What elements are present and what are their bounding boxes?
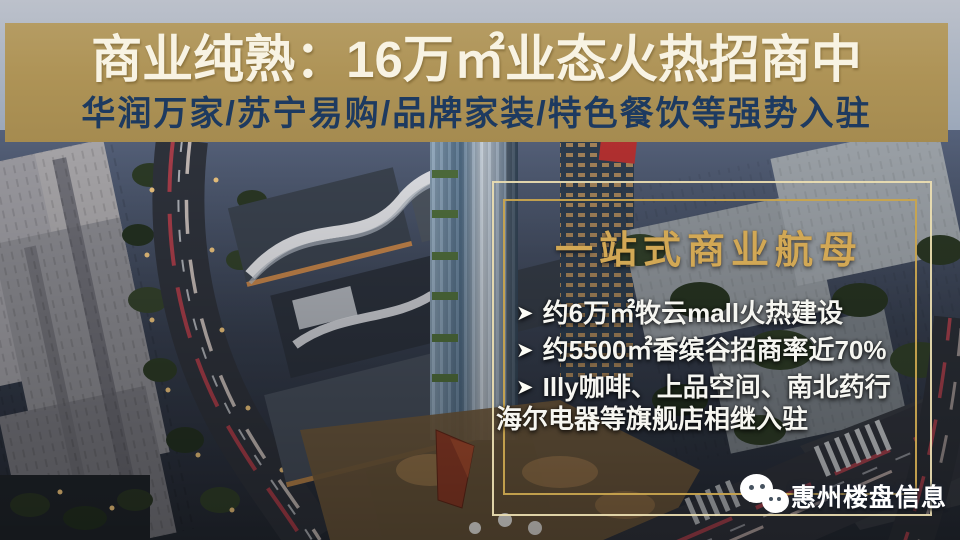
wechat-icon-eye xyxy=(749,485,754,490)
bullet-item: ➤约5500㎡香缤谷招商率近70% xyxy=(494,332,944,369)
bullet-text: 约6万㎡牧云mall火热建设 xyxy=(543,298,844,328)
wechat-icon-small-bubble xyxy=(762,489,789,513)
panel-title: 一站式商业航母 xyxy=(503,219,915,274)
wechat-icon-eye xyxy=(777,497,781,501)
headline-banner: 商业纯熟：16万㎡业态火热招商中 华润万家/苏宁易购/品牌家装/特色餐饮等强势入… xyxy=(5,23,948,142)
headline-subtitle: 华润万家/苏宁易购/品牌家装/特色餐饮等强势入驻 xyxy=(5,95,948,133)
bullet-item: 海尔电器等旗舰店相继入驻 xyxy=(494,401,944,438)
bullet-text: 约5500㎡香缤谷招商率近70% xyxy=(543,335,887,365)
bullet-text: 海尔电器等旗舰店相继入驻 xyxy=(496,404,808,434)
arrow-icon: ➤ xyxy=(516,295,534,332)
wechat-account-name: 惠州楼盘信息 xyxy=(791,478,947,514)
bullet-text: Illy咖啡、上品空间、南北药行 xyxy=(543,372,891,402)
wechat-watermark: 惠州楼盘信息 xyxy=(738,471,948,519)
wechat-icon-eye xyxy=(769,497,773,501)
arrow-icon: ➤ xyxy=(516,369,534,406)
arrow-icon: ➤ xyxy=(516,332,534,369)
promo-slide: 商业纯熟：16万㎡业态火热招商中 华润万家/苏宁易购/品牌家装/特色餐饮等强势入… xyxy=(0,0,960,540)
headline-title: 商业纯熟：16万㎡业态火热招商中 xyxy=(5,29,948,91)
wechat-icon-eye xyxy=(760,484,765,489)
bullet-item: ➤约6万㎡牧云mall火热建设 xyxy=(494,295,944,332)
bullet-list: ➤约6万㎡牧云mall火热建设 ➤约5500㎡香缤谷招商率近70% ➤Illy咖… xyxy=(494,295,944,438)
